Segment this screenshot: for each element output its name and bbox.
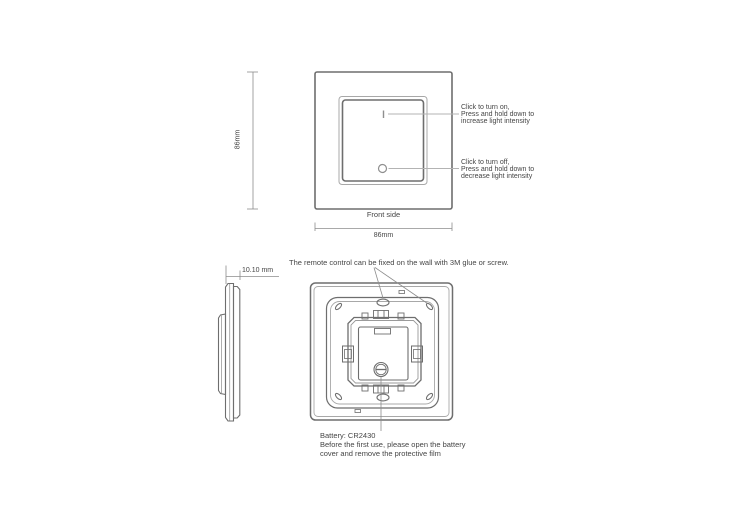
key-mark-top [399, 291, 405, 294]
front-view-drawing [315, 72, 459, 209]
screw-slot-bottom-left [334, 392, 342, 400]
wall-fixing-note: The remote control can be fixed on the w… [289, 258, 509, 267]
turn-off-note-line1: Click to turn off, [461, 159, 510, 166]
screw-slot-bottom-right [425, 392, 433, 400]
thickness-dimension-label: 10.10 mm [242, 267, 273, 274]
screw-slot-top-left [334, 302, 342, 310]
battery-note-line3: cover and remove the protective film [320, 449, 441, 458]
mount-hole-bottom [377, 394, 389, 401]
battery-slot [375, 329, 391, 335]
mount-hole-top [377, 299, 389, 306]
key-mark-bottom [355, 410, 361, 413]
back-inner-plate [327, 298, 439, 409]
turn-off-note-line2: Press and hold down to [461, 166, 534, 173]
power-off-mark [379, 165, 387, 173]
width-dimension-label: 86mm [345, 232, 422, 239]
front-outer-frame [315, 72, 452, 209]
side-back-plate [234, 287, 240, 419]
technical-drawing-page: Click to turn on, Press and hold down to… [0, 0, 750, 527]
battery-note-line1: Battery: CR2430 [320, 431, 375, 440]
height-dimension-label: 86mm [235, 118, 242, 162]
side-view-drawing [219, 284, 240, 422]
battery-compartment [359, 327, 409, 380]
screw-slot-top-right [425, 302, 433, 310]
front-dimension-lines [247, 72, 452, 231]
side-module-protrusion [219, 314, 226, 395]
turn-on-note-line2: Press and hold down to [461, 111, 534, 118]
turn-on-note-line3: increase light intensity [461, 118, 530, 125]
front-side-label: Front side [345, 210, 422, 219]
front-button-outer-line [339, 97, 427, 185]
battery-note-line2: Before the first use, please open the ba… [320, 440, 466, 449]
turn-on-note-line1: Click to turn on, [461, 104, 510, 111]
back-view-drawing [311, 283, 453, 420]
turn-off-note-line3: decrease light intensity [461, 173, 532, 180]
